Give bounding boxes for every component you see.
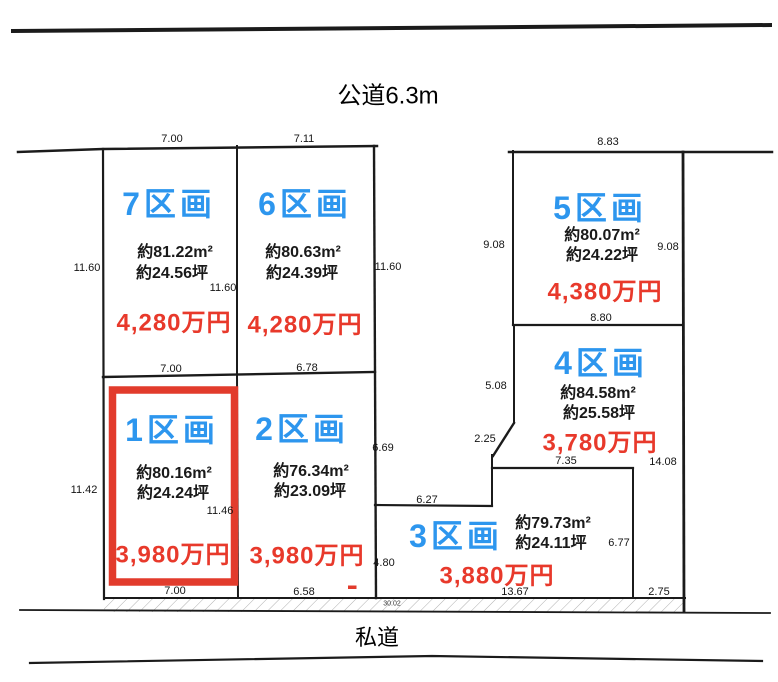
plot6-price: 4,280万円: [247, 305, 362, 340]
dim-plot3-step: 6.27: [416, 494, 437, 506]
dim-plot2-bottom: 6.58: [293, 586, 314, 598]
plot4-label: 4区画: [554, 338, 648, 384]
dim-boundary-7-1: 7.00: [160, 363, 181, 375]
dim-plot2-right-upper: 6.69: [372, 442, 393, 454]
dim-plot6-right: 11.60: [375, 261, 402, 273]
plot2-tsubo: 約23.09坪: [274, 477, 346, 501]
plot4-price: 3,780万円: [542, 423, 657, 458]
plot6-label: 6区画: [258, 179, 352, 225]
plot4-tsubo: 約25.58坪: [563, 399, 635, 423]
dim-plot5-right: 9.08: [657, 241, 678, 253]
dim-plot4-bottom: 7.35: [555, 455, 576, 467]
plot6-tsubo: 約24.39坪: [266, 259, 338, 283]
plot3-label: 3区画: [409, 511, 503, 557]
dim-plot5-left: 9.08: [483, 239, 504, 251]
plot1-tsubo: 約24.24坪: [137, 479, 209, 503]
dim-plot6-top: 7.11: [294, 133, 315, 145]
dim-plot6-bottom: 6.78: [296, 362, 317, 374]
plot2-label: 2区画: [255, 404, 349, 450]
plot5-tsubo: 約24.22坪: [566, 241, 638, 265]
dim-plot4-diag: 2.25: [474, 433, 495, 445]
public-road-label: 公道6.3m: [337, 76, 438, 111]
dim-plot5-bottom: 8.80: [590, 312, 611, 324]
plot1-price: 3,980万円: [115, 535, 230, 570]
plot2-price: 3,980万円: [249, 536, 364, 571]
dim-plot3-pole: 2.75: [648, 586, 669, 598]
dim-plot4-right: 14.08: [649, 456, 677, 468]
private-road-edge-line: [30, 656, 762, 663]
dim-left-lower: 11.42: [71, 484, 98, 496]
private-road-label: 私道: [355, 620, 399, 652]
dim-plot5-top: 8.83: [597, 136, 618, 148]
dim-plot3-right: 6.77: [608, 537, 629, 549]
public-road-edge-line: [13, 25, 770, 31]
red-dash-mark: [348, 586, 357, 590]
plot7-label: 7区画: [122, 179, 216, 225]
dim-plot7-inner: 11.60: [210, 282, 237, 294]
plot3-tsubo: 約24.11坪: [515, 529, 586, 553]
lot-layout-diagram: 公道6.3m 私道 7区画 約81.22m² 約24.56坪 4,280万円 6…: [0, 0, 778, 682]
plot7-tsubo: 約24.56坪: [136, 259, 208, 283]
plot5-price: 4,380万円: [547, 272, 662, 307]
plot3-price: 3,880万円: [439, 556, 554, 591]
dim-plot7-top: 7.00: [161, 133, 182, 145]
plot1-label: 1区画: [125, 405, 219, 451]
dim-road-strip: 30.02: [383, 601, 401, 608]
plot7-price: 4,280万円: [116, 303, 231, 338]
dim-plot2-right-lower: 4.80: [373, 557, 394, 569]
dim-left-upper: 11.60: [74, 262, 101, 274]
dim-plot1-bottom: 7.00: [164, 585, 185, 597]
dim-plot1-inner: 11.46: [207, 505, 234, 517]
dim-plot4-left: 5.08: [485, 380, 506, 392]
dim-plot3-bottom: 13.67: [501, 586, 529, 598]
